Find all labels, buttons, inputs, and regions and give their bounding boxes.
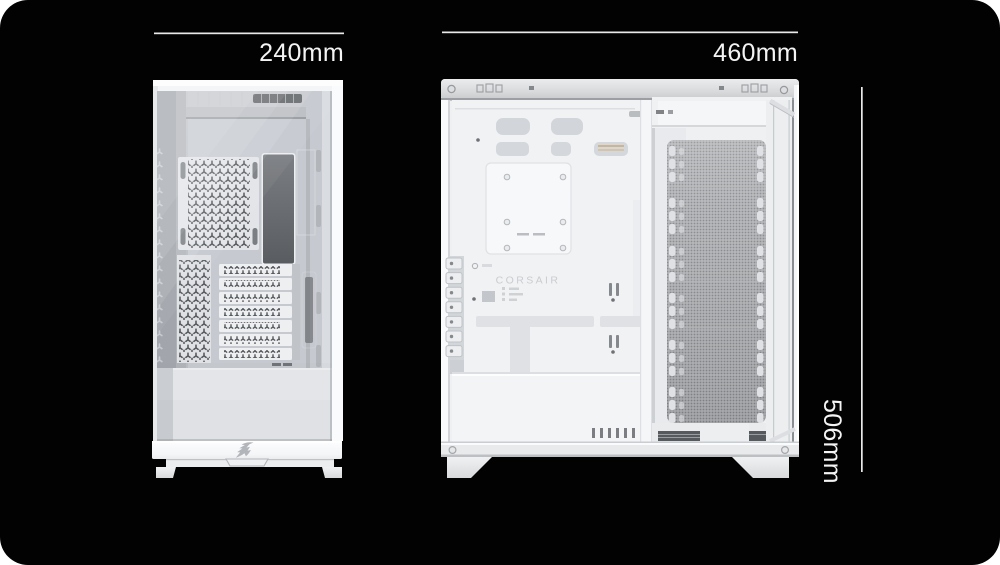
svg-text:240mm: 240mm: [259, 39, 344, 67]
svg-text:CORSAIR: CORSAIR: [496, 275, 561, 287]
svg-text:506mm: 506mm: [818, 399, 846, 484]
svg-text:460mm: 460mm: [713, 39, 798, 67]
